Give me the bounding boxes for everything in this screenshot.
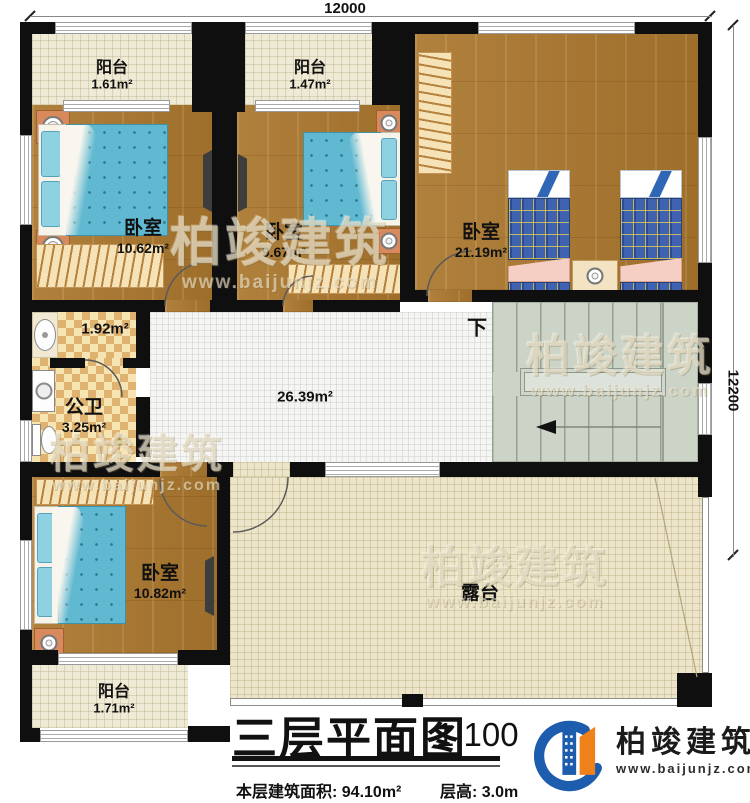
wall [192, 22, 245, 112]
room-label-vanity-area: 1.92m² [81, 320, 129, 337]
wall [20, 630, 32, 740]
window [20, 135, 32, 225]
tv-panel [238, 154, 247, 212]
room-name: 阳台 [93, 683, 134, 701]
floor-height-text: 层高: 3.0m [440, 778, 518, 802]
bed-sheet [60, 125, 102, 235]
wardrobe [36, 479, 154, 505]
door-threshold [160, 462, 207, 477]
hall-floor [150, 312, 492, 462]
door-threshold [165, 300, 210, 312]
window [478, 22, 635, 34]
wall [212, 105, 237, 302]
room-area: 1.61m² [91, 78, 132, 93]
room-area: 21.19m² [455, 244, 507, 260]
door-threshold [283, 300, 313, 312]
brand-name: 柏竣建筑 [616, 728, 750, 758]
door-threshold [428, 290, 472, 302]
twin-bed-mattress [620, 198, 682, 260]
terrace-pillar [698, 477, 712, 497]
nightstand [572, 260, 618, 292]
wall [188, 726, 230, 742]
room-area: 1.47m² [289, 78, 330, 93]
room-label-bedroom-tl: 卧室 10.62m² [117, 218, 169, 256]
dimension-line-right [733, 25, 734, 557]
window [698, 137, 712, 263]
window [255, 100, 360, 112]
window [55, 22, 192, 34]
room-name: 阳台 [91, 59, 132, 77]
wall [472, 290, 712, 302]
room-area: 10.62m² [117, 240, 169, 256]
dimension-width: 12000 [295, 0, 395, 17]
stair-treads-upper [492, 302, 664, 372]
pillow [41, 181, 61, 227]
nightstand [376, 228, 402, 254]
window [698, 383, 712, 435]
terrace-pillar [677, 673, 712, 707]
pillow [381, 180, 397, 220]
room-label-balcony-tm: 阳台 1.47m² [289, 59, 330, 92]
pillow [41, 131, 61, 177]
window [40, 730, 188, 742]
wall [210, 300, 283, 312]
wall [290, 462, 325, 477]
brand-logo: 柏竣建筑 www.baijunjz.com [528, 712, 744, 798]
twin-bed-pillow [620, 170, 682, 198]
title-underline-thick [232, 756, 500, 761]
room-label-bedroom-bl: 卧室 10.82m² [134, 563, 186, 601]
wall [136, 397, 150, 457]
room-name: 卧室 [455, 222, 507, 244]
wall [20, 462, 160, 477]
terrace-railing [702, 497, 709, 673]
washing-machine [32, 370, 55, 412]
stair-handrail [520, 368, 666, 396]
title-underline-thin [232, 765, 500, 767]
wall [400, 290, 428, 302]
room-label-balcony-bl: 阳台 1.71m² [93, 683, 134, 716]
wall [415, 22, 478, 34]
window [20, 420, 32, 462]
washer-drum-icon [35, 383, 52, 400]
twin-bed-pillow [508, 170, 570, 198]
room-area: 3.25m² [62, 419, 106, 435]
wall [400, 105, 415, 290]
window [63, 100, 170, 112]
room-label-bathroom: 公卫 3.25m² [62, 397, 106, 435]
toilet-bowl [41, 426, 57, 454]
toilet-tank [32, 424, 41, 456]
door-knob [114, 438, 122, 446]
room-label-balcony-tl: 阳台 1.61m² [91, 59, 132, 92]
sink-tap [42, 332, 48, 338]
dimension-height: 12200 [725, 356, 742, 426]
plan-scale: 1:100 [436, 716, 519, 754]
wall [698, 263, 712, 383]
lamp-icon [587, 268, 604, 285]
wall [20, 25, 32, 135]
stairs-down-label: 下 [467, 318, 487, 341]
room-area: 1.71m² [93, 702, 134, 717]
wardrobe [288, 264, 402, 294]
wall [440, 462, 712, 477]
room-name: 露台 [461, 583, 499, 605]
wardrobe [418, 52, 452, 174]
room-name: 卧室 [262, 222, 306, 244]
room-area: 9.67m² [262, 244, 306, 260]
wall [372, 22, 415, 105]
wall [136, 302, 150, 363]
twin-bed-mattress [508, 198, 570, 260]
tv-panel [205, 556, 214, 616]
wall [217, 477, 230, 663]
room-label-terrace: 露台 [461, 583, 499, 605]
wall [313, 300, 400, 312]
wall [20, 650, 58, 665]
stair-treads-lower [492, 396, 664, 462]
room-name: 卧室 [134, 563, 186, 585]
room-label-bedroom-tr: 卧室 21.19m² [455, 222, 507, 260]
lamp-icon [41, 635, 58, 652]
wall [178, 650, 230, 665]
brand-website: www.baijunjz.com [616, 762, 750, 775]
tv-panel [203, 150, 212, 212]
pillow [381, 138, 397, 178]
wall [20, 225, 32, 420]
wall [50, 358, 85, 368]
wall [698, 22, 712, 137]
room-name: 公卫 [62, 397, 106, 419]
room-name: 卧室 [117, 218, 169, 240]
bed-sheet [52, 507, 88, 623]
bed-sheet [343, 133, 381, 225]
room-label-hall-area: 26.39m² [277, 388, 333, 405]
lamp-icon [381, 115, 398, 132]
window [20, 540, 32, 630]
brand-logo-icon [528, 716, 614, 796]
room-label-bedroom-tm: 卧室 9.67m² [262, 222, 306, 260]
window [245, 22, 372, 34]
wall [207, 462, 233, 477]
room-name: 阳台 [289, 59, 330, 77]
room-area: 10.82m² [134, 585, 186, 601]
floor-area-text: 本层建筑面积: 94.10m² [236, 778, 401, 802]
logo-building-blue [562, 730, 576, 775]
wall [20, 728, 40, 742]
window [58, 653, 178, 665]
window [325, 462, 440, 477]
door-threshold [233, 462, 290, 477]
lamp-icon [381, 233, 398, 250]
floor-plan-page: 12000 12200 阳台 1.61m² 阳台 1.47m² 卧室 10.62… [0, 0, 750, 803]
